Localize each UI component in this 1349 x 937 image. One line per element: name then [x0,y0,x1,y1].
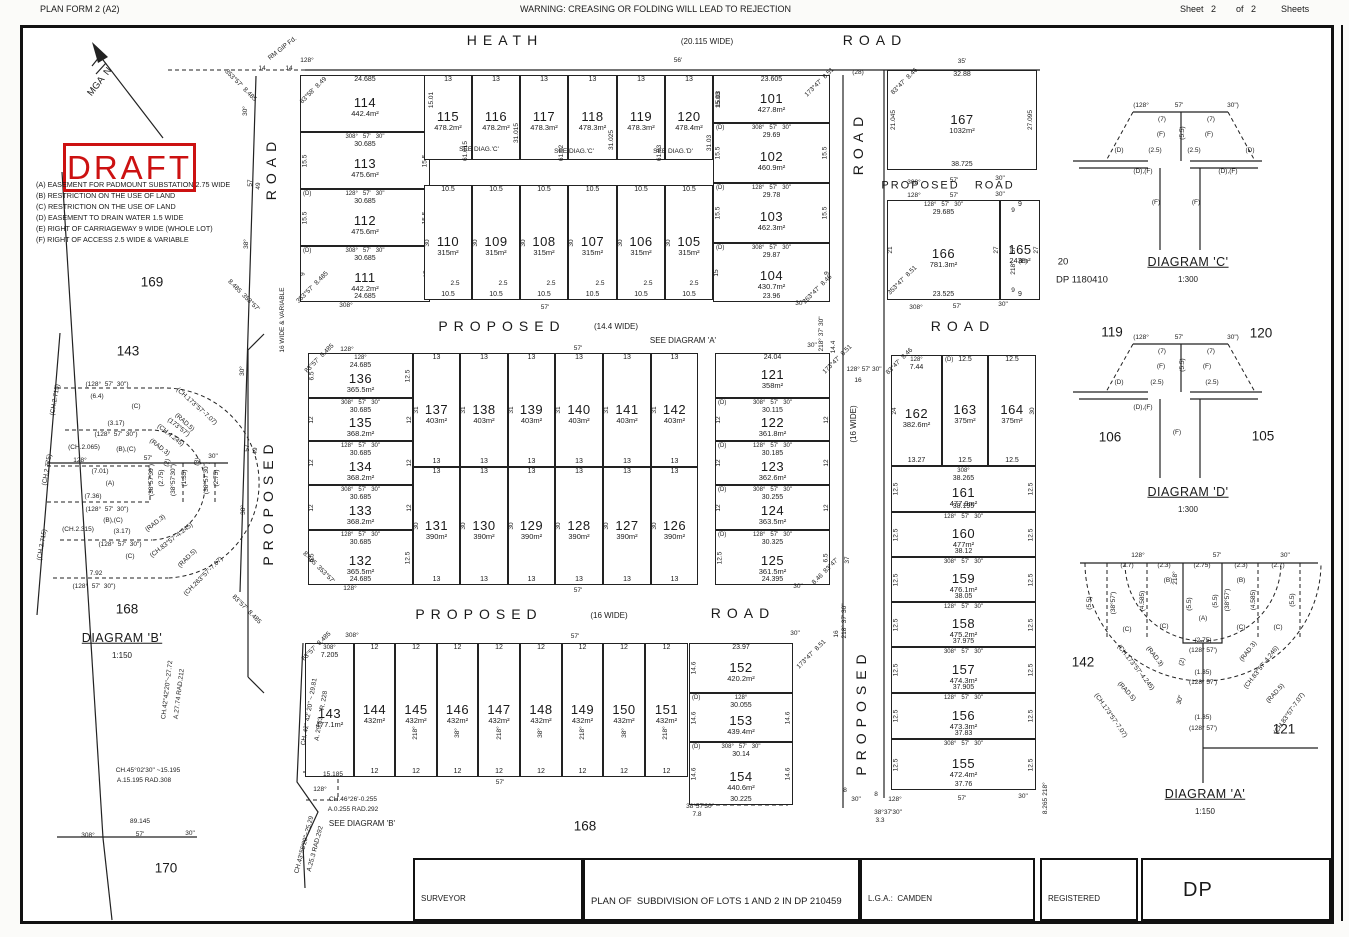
left-dimension: 12.5 [892,483,899,496]
top-dimension: 13 [671,354,679,362]
plan-annotation: (4.585) [1251,590,1258,611]
lot-area: 478.3m² [627,123,655,132]
lot-number: 112 [354,214,376,227]
lot-number: 153 [729,714,752,727]
lot-area: 358m² [762,381,783,390]
plan-annotation: 218° 37' 30" [819,316,826,351]
lot-130: 13130390m²1330 [460,467,508,585]
bearing-label: 128° [735,695,747,702]
plan-annotation: 30" [1018,794,1028,801]
lot-140: 13140403m²1331 [555,353,603,467]
lot-number: 122 [761,416,784,429]
top-dimension: 10.5 [489,186,503,194]
plan-annotation: (38°57') [1225,589,1232,612]
top-dimension: 13 [623,354,631,362]
plan-annotation: 1:300 [1178,506,1198,514]
lot-area: 361.5m² [759,567,787,576]
plan-annotation: (5.5) [1180,126,1187,139]
plan-annotation: (2.3) [1157,563,1170,570]
top-dimension: 30.185 [762,450,783,458]
titleblock-plan-title: PLAN OF SUBDIVISION OF LOTS 1 AND 2 IN D… [583,858,860,921]
plan-annotation: (128° 57' 30") [85,382,128,389]
plan-annotation: (38°57') [1111,592,1118,615]
lot-area: 390m² [521,532,542,541]
plan-annotation: (3.17) [108,421,125,428]
lot-area: 432m² [447,716,468,725]
lga-value: L.G.A.: CAMDEN [868,892,1027,906]
plan-annotation: (1.35) [1195,715,1212,722]
plan-annotation: 38° [455,728,462,738]
bottom-dimension: 12 [537,768,545,775]
left-dimension: 14.6 [690,767,697,780]
bottom-dimension: 10.5 [634,291,648,298]
right-dimension: 12.5 [405,369,412,382]
easement-marker: (D) [716,185,724,191]
plan-annotation: 7.8 [692,812,701,819]
right-dimension: 27 [993,246,1000,253]
lot-number: 116 [485,110,507,123]
plan-annotation: (2.5) [1148,148,1161,155]
plan-annotation: (16 WIDE) [590,612,627,620]
plan-annotation: (28) [852,70,864,77]
plan-annotation: 128° [907,193,920,200]
plan-annotation: DP 1180410 [1056,275,1108,285]
plan-annotation: (2.7) [1271,563,1284,570]
top-dimension: 12 [454,644,462,652]
road-label: ROAD [711,606,775,620]
bottom-dimension: 12 [454,768,462,775]
left-dimension: 30 [603,522,610,529]
left-dimension: 12 [715,459,722,466]
lot-number: 105 [677,235,700,248]
right-dimension: 12 [823,416,830,423]
plan-annotation: 218° [1043,782,1050,795]
top-dimension: 12.5 [1005,356,1019,364]
plan-annotation: (D) [1114,380,1123,387]
plan-annotation: 30" [790,631,800,638]
easement-notes: (A) EASEMENT FOR PADMOUNT SUBSTATION 2.7… [36,179,251,245]
lot-153: 128°30.055153439.4m²14.614.6(D) [689,693,793,742]
plan-annotation: (E) [1019,259,1028,266]
plan-annotation: 38°57'30" [686,804,714,811]
left-dimension: 31 [413,406,420,413]
lot-area: 432m² [656,716,677,725]
lot-number: 156 [952,709,975,722]
right-dimension: 12.5 [405,551,412,564]
top-dimension: 30.685 [354,255,375,263]
bottom-dimension: 12 [663,768,671,775]
right-dimension: 27 [1033,246,1040,253]
bottom-dimension: 12.5 [1005,457,1019,464]
easement-note: (A) EASEMENT FOR PADMOUNT SUBSTATION 2.7… [36,179,251,190]
lot-150: 12150432m²12 [603,643,645,777]
easement-marker: (D) [692,744,700,750]
lot-number: 146 [446,703,469,716]
bearing-label: 128° 57' 30" [944,695,983,702]
lot-103: 128° 57' 30"29.78103462.3m²15.515.5(D) [713,183,830,243]
plan-annotation: (F) [1192,200,1200,207]
plan-annotation: SEE DIAG.'C' [554,149,594,156]
plan-annotation: 57' [136,832,144,839]
plan-annotation: (C) [1273,625,1282,632]
bearing-label: 128° 57' 30" [944,514,983,521]
plan-annotation: (128° 57') [1189,726,1217,733]
bottom-dimension: 12 [371,768,379,775]
lot-number: 163 [953,403,976,416]
top-dimension: 13 [433,468,441,476]
left-dimension: 12 [715,416,722,423]
bottom-dimension: 24.395 [762,576,783,583]
lot-144: 12144432m²12 [354,643,395,777]
lot-number: 111 [354,271,375,284]
lot-number: 119 [630,110,652,123]
plan-annotation: 128° [343,586,356,593]
lot-number: 147 [487,703,510,716]
lot-area: 368.2m² [347,473,375,482]
top-dimension: 30.255 [762,494,783,502]
lot-area: 478.3m² [579,123,607,132]
top-dimension: 13 [480,468,488,476]
lot-147: 12147432m²12 [478,643,520,777]
plan-annotation: 119 [1101,325,1123,339]
top-dimension: 12 [537,644,545,652]
lot-128: 13128390m²1330 [555,467,603,585]
easement-note: (C) RESTRICTION ON THE USE OF LAND [36,201,251,212]
plan-annotation: 38° [241,505,248,515]
sheet-info: Sheet 2 of 2 Sheets [1180,4,1309,14]
lot-149: 12149432m²12 [562,643,603,777]
lot-area: 361.8m² [759,429,787,438]
easement-note: (E) RIGHT OF CARRIAGEWAY 9 WIDE (WHOLE L… [36,223,251,234]
plan-annotation: 30" [807,343,817,350]
top-dimension: 30.14 [732,751,750,759]
top-dimension: 12 [620,644,628,652]
left-dimension: 12.5 [892,710,899,723]
road-label: PROPOSED [261,438,275,565]
lot-138: 13138403m²1331 [460,353,508,467]
plan-annotation: (B),(C) [103,518,123,525]
plan-annotation: (1.35) [1195,670,1212,677]
bottom-dimension: 10.5 [586,291,600,298]
plan-annotation: 31.025 [609,130,616,150]
right-dimension: 27.095 [1027,110,1034,130]
bearing-label: 128° 57' 30" [924,202,963,209]
lot-158: 128° 57' 30"158475.2m²37.97512.512.5 [891,602,1036,647]
plan-annotation: (2.75) [159,470,166,487]
plan-annotation: SEE DIAG.'D' [653,149,693,156]
bearing-label: 308° 57' 30" [753,487,792,494]
left-dimension: 21.045 [890,110,897,130]
left-dimension: 12.5 [892,758,899,771]
plan-annotation: 218° [497,726,504,739]
bearing-label: 308° 57' 30" [752,125,791,132]
top-dimension: 23.97 [732,644,750,652]
bearing-label: 308° 57' 30" [753,400,792,407]
lot-area: 375m² [1001,416,1022,425]
bottom-dimension: 10.5 [537,291,551,298]
lot-number: 149 [571,703,594,716]
lot-number: 166 [932,247,955,260]
bottom-dimension: 12 [495,768,503,775]
surveyor-heading: SURVEYOR [421,892,575,906]
plan-annotation: 37 [845,556,852,563]
top-dimension: 24.04 [764,354,782,362]
top-dimension: 13 [589,76,597,84]
lot-number: 103 [760,210,783,223]
bottom-dimension: 38.05 [955,593,973,600]
right-dimension: 15.5 [822,147,829,160]
lot-134: 128° 57' 30"30.685134368.2m²1212 [308,441,413,485]
plan-annotation: (2.5) [1150,380,1163,387]
plan-annotation: (F) [1173,430,1181,437]
bearing-label: 128° [354,355,366,362]
plan-annotation: (5.5) [1180,358,1187,371]
diagram-title: DIAGRAM 'D' [1147,486,1228,499]
road-label: PROPOSED [854,648,868,775]
plan-annotation: 56' [674,58,682,65]
plan-annotation: (7) [1158,349,1166,356]
plan-annotation: (128° 57' 30") [98,542,141,549]
top-dimension: 13 [575,354,583,362]
left-dimension: 31 [508,406,515,413]
plan-annotation: (C) [1122,627,1131,634]
plan-annotation: 57' [950,193,958,200]
plan-annotation: 308° [907,180,920,187]
warning-text: WARNING: CREASING OR FOLDING WILL LEAD T… [520,4,791,14]
lot-number: 164 [1000,403,1023,416]
lot-number: 144 [363,703,386,716]
plan-annotation: 38° [622,728,629,738]
easement-marker: (D) [718,532,726,538]
plan-sheet-page: PLAN FORM 2 (A2) WARNING: CREASING OR FO… [0,0,1349,937]
plan-annotation: 105 [1252,429,1275,443]
plan-annotation: A.0.255 RAD.292 [328,807,379,814]
left-dimension: 30 [651,522,658,529]
plan-annotation: 143 [117,344,140,358]
plan-annotation: CH.45°02'30" ~15.195 [116,768,181,775]
lot-110: 10.5110315m²10.530 [424,185,472,300]
road-label: ROAD [931,319,995,333]
bearing-label: 308° [957,468,969,475]
lot-155: 308° 57' 30"155472.4m²37.7612.512.5 [891,739,1036,790]
plan-annotation: 20 [1058,257,1069,267]
lot-133: 308° 57' 30"30.685133368.2m²1212 [308,485,413,530]
plan-annotation: 218° [1011,261,1018,274]
plan-annotation: 57' [541,305,549,312]
plan-annotation: 30° [240,366,247,376]
lot-127: 13127390m²1330 [603,467,651,585]
top-dimension: 30.685 [354,141,375,149]
bottom-dimension: 13 [575,576,583,583]
lot-area: 427.8m² [758,105,786,114]
lot-number: 114 [354,96,376,109]
plan-annotation: 57' [950,178,958,185]
lot-number: 137 [425,403,448,416]
left-dimension: 12.5 [892,664,899,677]
plan-annotation: 2.5 [450,281,459,288]
road-label: ROAD [843,33,907,47]
plan-annotation: 30" [793,584,803,591]
plan-annotation: (F) [1203,364,1211,371]
bottom-dimension: 10.5 [441,291,455,298]
easement-marker: (D) [945,357,953,363]
bottom-dimension: 30.225 [730,796,751,803]
lot-109: 10.5109315m²10.530 [472,185,520,300]
lot-area: 781.3m² [930,260,958,269]
lot-161: 308°38.265161477.9m²38.19512.512.5 [891,466,1036,512]
plan-annotation: (128° 57') [1189,648,1217,655]
plan-annotation: (7) [1207,117,1215,124]
lot-area: 315m² [437,248,458,257]
plan-annotation: 3.3 [875,818,884,825]
lot-area: 432m² [613,716,634,725]
lot-number: 160 [952,527,975,540]
plan-annotation: 57' [574,346,582,353]
left-dimension: 15.5 [301,154,308,167]
plan-annotation: (F) [1157,132,1165,139]
lot-number: 158 [952,617,975,630]
lot-number: 154 [729,770,752,783]
left-dimension: 12.5 [892,618,899,631]
plan-annotation: A.15.195 RAD.308 [117,778,171,785]
right-dimension: 12 [406,459,413,466]
right-dimension: 12.5 [1028,710,1035,723]
bottom-dimension: 23.525 [933,291,954,298]
top-dimension: 12 [412,644,420,652]
plan-annotation: (C) [1159,624,1168,631]
easement-marker: (D) [718,443,726,449]
plan-annotation: 308° [339,303,352,310]
plan-annotation: 31.03 [707,135,714,151]
plan-annotation: (128° 57') [1189,680,1217,687]
top-dimension: 30.685 [350,539,371,547]
plan-annotation: (B),(C) [116,447,136,454]
plan-annotation: (CH.2.315) [62,527,94,534]
lot-number: 108 [532,235,555,248]
plan-annotation: (D),(F) [1133,405,1152,412]
plan-annotation: 168 [116,602,139,616]
lot-126: 13126390m²1330 [651,467,698,585]
plan-annotation: 30" [185,831,195,838]
left-dimension: 30 [424,239,431,246]
plan-annotation: 1:150 [112,652,132,660]
left-dimension: 12 [308,416,315,423]
plan-annotation: CH.46°26'-0.255 [329,797,377,804]
plan-annotation: 57' [958,796,966,803]
bottom-dimension: 13 [528,576,536,583]
lot-107: 10.5107315m²10.530 [568,185,617,300]
lot-162: 128°7.44162382.6m²13.2724 [891,355,942,466]
lot-number: 136 [349,372,372,385]
plan-form-label: PLAN FORM 2 (A2) [40,4,120,14]
lot-number: 123 [761,460,784,473]
plan-annotation: (128° 57' 30") [85,507,128,514]
lot-number: 141 [615,403,638,416]
plan-annotation: (5.5) [1290,593,1297,606]
lot-number: 120 [677,110,700,123]
plan-annotation: 2.5 [595,281,604,288]
bottom-dimension: 13 [671,458,679,465]
lot-number: 139 [520,403,543,416]
road-label: ROAD [851,111,865,175]
lot-156: 128° 57' 30"156473.3m²37.8312.512.5 [891,693,1036,739]
bearing-label: 308° 57' 30" [752,245,791,252]
bottom-dimension: 13 [671,576,679,583]
lot-area: 315m² [582,248,603,257]
plan-annotation: (2.75) [214,470,221,487]
lot-152: 23.97152420.2m²14.6 [689,643,793,693]
lot-area: 439.4m² [727,727,755,736]
plan-annotation: 57' [1175,335,1183,342]
plan-annotation: 30" [851,797,861,804]
plan-annotation: (2.5) [1187,148,1200,155]
top-dimension: 13 [480,354,488,362]
top-dimension: 23.605 [761,76,782,84]
plan-annotation: 128° [888,797,901,804]
plan-annotation: (2.75) [1195,638,1212,645]
lot-number: 157 [952,663,975,676]
lot-area: 315m² [678,248,699,257]
bearing-label: 308° 57' 30" [721,744,760,751]
plan-annotation: 8 [843,788,847,795]
lot-number: 140 [567,403,590,416]
lot-123: 128° 57' 30"30.185123362.6m²1212(D) [715,441,830,485]
lot-area: 390m² [616,532,637,541]
lot-area: 475.6m² [351,170,379,179]
bottom-dimension: 38.725 [951,161,972,168]
lot-area: 432m² [405,716,426,725]
lot-129: 13129390m²1330 [508,467,555,585]
road-label: HEATH [467,33,543,47]
plan-annotation: (D),(F) [1218,169,1237,176]
sheet-border-double-line [1341,25,1343,921]
lot-area: 403m² [616,416,637,425]
left-dimension: 31 [651,406,658,413]
lot-area: 362.6m² [759,473,787,482]
lot-area: 440.6m² [727,783,755,792]
right-dimension: 6.5 [823,553,830,562]
bottom-dimension: 13 [433,576,441,583]
lot-area: 1032m² [949,126,974,135]
top-dimension: 30.325 [762,539,783,547]
right-dimension: 12.5 [1028,573,1035,586]
left-dimension: 21 [887,246,894,253]
plan-annotation: (38°57'30") [171,464,178,496]
easement-marker: (D) [303,248,311,254]
lot-148: 12148432m²12 [520,643,562,777]
left-dimension: 31 [555,406,562,413]
plan-annotation: (CH.2.065) [68,445,100,452]
top-dimension: 29.78 [763,192,781,200]
lot-area: 382.6m² [903,420,931,429]
plan-annotation: 106 [1099,430,1122,444]
plan-annotation: 128° [340,347,353,354]
lot-121: 24.04121358m² [715,353,830,398]
left-dimension: 30 [413,522,420,529]
bottom-dimension: 24.685 [350,576,371,583]
lot-number: 134 [349,460,372,473]
lot-number: 159 [952,572,975,585]
plan-annotation: (38°57'30") [149,464,156,496]
lot-area: 403m² [568,416,589,425]
bearing-label: 308° 57' 30" [944,649,983,656]
bearing-label: 128° 57' 30" [345,191,384,198]
right-dimension: 14.6 [785,711,792,724]
lot-number: 109 [484,235,507,248]
bottom-dimension: 13.27 [908,457,926,464]
plan-annotation: 57 [248,179,255,186]
bearing-label: 128° 57' 30" [341,443,380,450]
